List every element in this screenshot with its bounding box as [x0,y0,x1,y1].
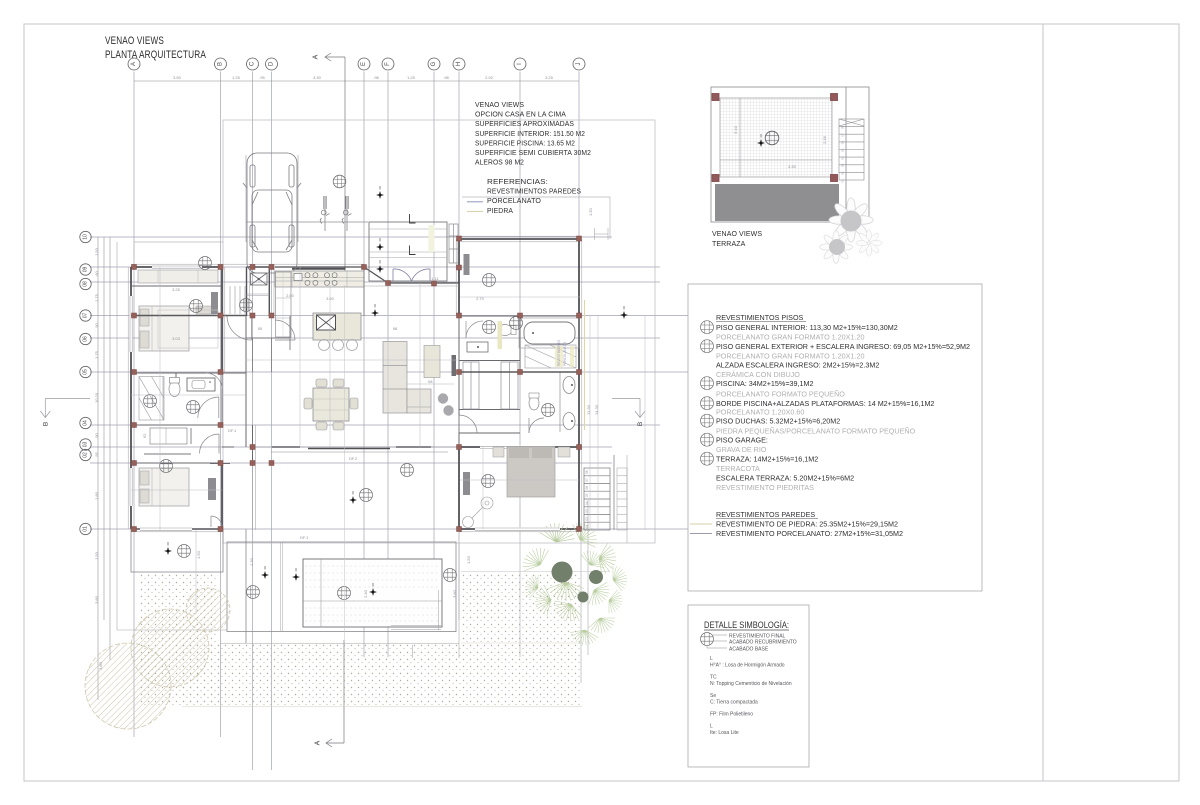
svg-text:REVESTIMIENTO PIEDRITAS: REVESTIMIENTO PIEDRITAS [716,483,814,492]
svg-text:08: 08 [428,379,433,384]
svg-text:1.75: 1.75 [94,350,99,359]
svg-text:TC: TC [710,675,717,681]
svg-text:SUPERFICIES APROXIMADAS: SUPERFICIES APROXIMADAS [475,121,574,128]
svg-text:01: 01 [841,179,845,183]
svg-text:ACABADO BASE: ACABADO BASE [729,647,769,653]
svg-text:B: B [637,422,644,426]
svg-text:ESCALERA TERRAZA: 5.20M2+15%=6: ESCALERA TERRAZA: 5.20M2+15%=6M2 [716,474,854,483]
svg-text:PISO GENERAL EXTERIOR + ESCALE: PISO GENERAL EXTERIOR + ESCALERA INGRESO… [716,342,970,351]
svg-text:ACABADO RECUBRIMIENTO: ACABADO RECUBRIMIENTO [729,640,797,646]
svg-text:3.80: 3.80 [94,595,99,604]
svg-text:3.25: 3.25 [172,287,181,292]
svg-text:03: 03 [841,163,845,167]
svg-text:1.50: 1.50 [94,551,99,560]
svg-text:98: 98 [393,326,398,331]
svg-text:FP: Film Polietileno: FP: Film Polietileno [710,712,753,718]
svg-text:A: A [313,54,320,59]
svg-text:3.80: 3.80 [98,661,103,670]
svg-text:PORCELANATO GRAN FORMATO 1.20: PORCELANATO GRAN FORMATO 1.20X1.20 [716,333,864,342]
svg-text:GRAVA DE RIO: GRAVA DE RIO [716,445,767,454]
svg-text:I: I [517,63,523,65]
svg-text:PORCELANATO 1.20X0.60: PORCELANATO 1.20X0.60 [716,408,804,417]
svg-text:B: B [218,62,224,66]
svg-text:VENAO VIEWS: VENAO VIEWS [712,231,762,238]
svg-text:03: 03 [585,509,589,513]
svg-text:05: 05 [83,369,89,375]
svg-text:3.50: 3.50 [173,75,182,80]
svg-text:2.92: 2.92 [485,75,494,80]
svg-text:.60: .60 [94,270,99,276]
svg-text:OPCION CASA EN LA CIMA: OPCION CASA EN LA CIMA [475,112,566,119]
svg-text:SUPERFICIE SEMI CUBIERTA 30M2: SUPERFICIE SEMI CUBIERTA 30M2 [475,150,591,157]
svg-text:TERRACOTA: TERRACOTA [716,464,760,473]
svg-text:PLANTA ARQUITECTURA: PLANTA ARQUITECTURA [105,49,206,61]
svg-text:3.25: 3.25 [545,75,554,80]
svg-text:02: 02 [83,452,89,458]
svg-text:95: 95 [258,326,263,331]
svg-text:PORCELANATO: PORCELANATO [487,198,541,205]
svg-text:PISO GARAGE:: PISO GARAGE: [716,436,768,445]
svg-text:03: 03 [83,442,89,448]
svg-text:PORCELANATO FORMATO PEQUEÑO: PORCELANATO FORMATO PEQUEÑO [716,390,845,399]
svg-text:1.75: 1.75 [94,293,99,302]
svg-text:B: B [42,422,49,426]
svg-text:C: C [250,61,256,66]
svg-text:ALEROS 98 M2: ALEROS 98 M2 [475,160,524,167]
svg-text:08: 08 [841,125,845,129]
svg-text:REVESTIMIENTO DE PIEDRA: 25.35: REVESTIMIENTO DE PIEDRA: 25.35M2+15%=29,… [716,520,898,529]
svg-text:1.50: 1.50 [94,247,99,256]
svg-text:Ite: Losa Lite: Ite: Losa Lite [710,730,739,736]
svg-text:08: 08 [585,470,589,474]
svg-text:1.50: 1.50 [196,550,201,559]
svg-text:VENAO VIEWS: VENAO VIEWS [105,35,164,47]
svg-text:DF.1: DF.1 [228,428,237,433]
svg-text:N: Topping Cementicio de Nivel: N: Topping Cementicio de Nivelación [710,681,792,687]
svg-text:2.16: 2.16 [822,135,827,144]
svg-text:05: 05 [585,493,589,497]
svg-text:07: 07 [841,133,845,137]
svg-text:TERRAZA: 14M2+15%=16,1M2: TERRAZA: 14M2+15%=16,1M2 [716,455,818,464]
svg-text:PISO GENERAL INTERIOR: 113,30: PISO GENERAL INTERIOR: 113,30 M2+15%=130… [716,323,898,332]
svg-text:DF.1: DF.1 [300,535,309,540]
svg-text:PORCELANATO GRAN FORMATO 1.20: PORCELANATO GRAN FORMATO 1.20X1.20 [716,352,864,361]
svg-text:L: L [710,656,713,662]
svg-text:3.10: 3.10 [733,125,738,134]
svg-text:06: 06 [83,336,89,342]
svg-text:1.11: 1.11 [431,276,439,281]
svg-text:05: 05 [841,148,845,152]
svg-text:1.30: 1.30 [249,557,254,566]
svg-text:ALZADA ESCALERA INGRESO: 2M2+1: ALZADA ESCALERA INGRESO: 2M2+15%=2.3M2 [716,361,879,370]
svg-text:1.25: 1.25 [407,75,416,80]
svg-text:14.30: 14.30 [594,404,599,415]
svg-text:11.30: 11.30 [586,404,591,414]
svg-text:E: E [361,62,367,66]
svg-text:3.80: 3.80 [452,589,457,598]
svg-text:A: A [315,740,322,745]
svg-text:PIEDRA PEQUEÑAS/PORCELANATO FO: PIEDRA PEQUEÑAS/PORCELANATO FORMATO PEQU… [716,427,916,436]
svg-text:.98: .98 [443,75,449,80]
svg-text:.95: .95 [259,75,265,80]
svg-text:.90: .90 [94,432,99,438]
svg-text:PORCELANATO: PORCELANATO [563,342,567,366]
svg-text:04: 04 [841,156,845,160]
svg-text:L: L [710,724,713,730]
svg-text:2.70: 2.70 [476,296,485,301]
svg-text:F: F [385,62,391,66]
svg-text:09: 09 [83,267,89,273]
svg-text:1.50: 1.50 [466,555,471,564]
svg-text:06: 06 [585,486,589,490]
svg-text:VENAO VIEWS: VENAO VIEWS [475,102,524,109]
svg-text:REVESTIMIENTOS PAREDES: REVESTIMIENTOS PAREDES [716,510,815,519]
svg-text:62: 62 [142,433,147,438]
svg-text:REVESTIMIENTO PORCELANATO: 27M: REVESTIMIENTO PORCELANATO: 27M2+15%=31,0… [716,529,903,538]
svg-text:10.20: 10.20 [94,392,99,403]
svg-text:TERRAZA: TERRAZA [712,241,746,248]
svg-text:REFERENCIAS:: REFERENCIAS: [487,179,548,186]
svg-text:REVESTIMIENTO: REVESTIMIENTO [557,340,561,366]
svg-text:02: 02 [585,517,589,521]
svg-text:H°A° : Losa de Hormigón Armado: H°A° : Losa de Hormigón Armado [710,663,785,669]
svg-text:3.03: 3.03 [172,336,181,341]
svg-text:H: H [456,62,462,66]
svg-text:2.50: 2.50 [286,293,295,298]
svg-text:04: 04 [585,501,589,505]
svg-text:4.30: 4.30 [788,164,797,169]
svg-text:07: 07 [83,313,89,319]
svg-text:SUPERFICIE PISCINA: 13.65 M2: SUPERFICIE PISCINA: 13.65 M2 [475,140,575,147]
svg-text:07: 07 [585,478,589,482]
svg-text:DETALLE SIMBOLOGÍA:: DETALLE SIMBOLOGÍA: [704,620,789,631]
svg-text:CERÁMICA CON DIBUJO: CERÁMICA CON DIBUJO [716,370,800,379]
svg-text:1.25: 1.25 [232,75,241,80]
svg-text:.90: .90 [94,322,99,328]
svg-text:02: 02 [841,171,845,175]
svg-text:DF.2: DF.2 [349,456,358,461]
svg-text:REVESTIMIENTOS PISOS: REVESTIMIENTOS PISOS [716,313,804,322]
svg-text:Se: Se [710,693,716,699]
svg-text:SUPERFICIE INTERIOR: 151.50 M2: SUPERFICIE INTERIOR: 151.50 M2 [475,131,585,138]
svg-text:J: J [576,63,582,66]
svg-text:D: D [269,61,275,66]
svg-text:06: 06 [841,141,845,145]
svg-text:REVESTIMIENTOS PAREDES: REVESTIMIENTOS PAREDES [487,189,581,196]
svg-text:10: 10 [83,234,89,240]
svg-text:A: A [131,62,137,66]
svg-text:.98: .98 [373,75,379,80]
svg-text:1.80: 1.80 [94,491,99,500]
svg-text:08: 08 [83,281,89,287]
svg-text:3.50: 3.50 [326,296,335,301]
svg-text:.55: .55 [94,451,99,457]
svg-text:PIEDRA: PIEDRA [487,208,513,215]
svg-text:01: 01 [585,524,589,528]
svg-text:2.40: 2.40 [363,589,368,598]
svg-text:04: 04 [83,420,89,426]
svg-text:3.30: 3.30 [313,75,322,80]
svg-text:C: Tierra compactada: C: Tierra compactada [710,700,758,706]
svg-text:1.50: 1.50 [588,207,593,216]
svg-text:G: G [431,61,437,66]
svg-text:PISCINA: 34M2+15%=39,1M2: PISCINA: 34M2+15%=39,1M2 [716,379,813,388]
svg-text:PISO DUCHAS: 5.32M2+15%=6,20M: PISO DUCHAS: 5.32M2+15%=6,20M2 [716,417,840,426]
svg-text:01: 01 [83,526,89,532]
